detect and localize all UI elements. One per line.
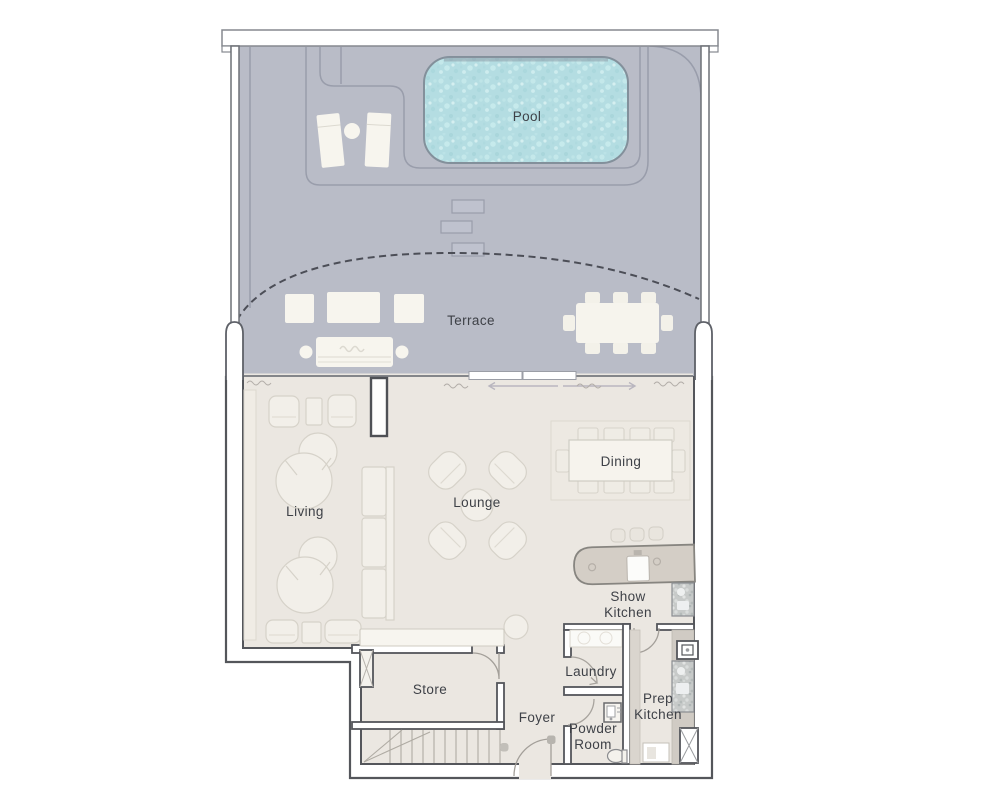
svg-text:Foyer: Foyer (519, 710, 556, 725)
svg-text:Powder: Powder (569, 721, 617, 736)
svg-text:Terrace: Terrace (447, 313, 495, 328)
svg-text:Lounge: Lounge (453, 495, 500, 510)
svg-text:Room: Room (574, 737, 612, 752)
svg-text:Pool: Pool (513, 109, 542, 124)
svg-text:Store: Store (413, 682, 447, 697)
svg-text:Kitchen: Kitchen (634, 707, 682, 722)
svg-text:Living: Living (286, 504, 324, 519)
svg-text:Dining: Dining (601, 454, 642, 469)
svg-text:Show: Show (610, 589, 645, 604)
svg-text:Kitchen: Kitchen (604, 605, 652, 620)
svg-text:Laundry: Laundry (565, 664, 617, 679)
svg-text:Prep: Prep (643, 691, 673, 706)
